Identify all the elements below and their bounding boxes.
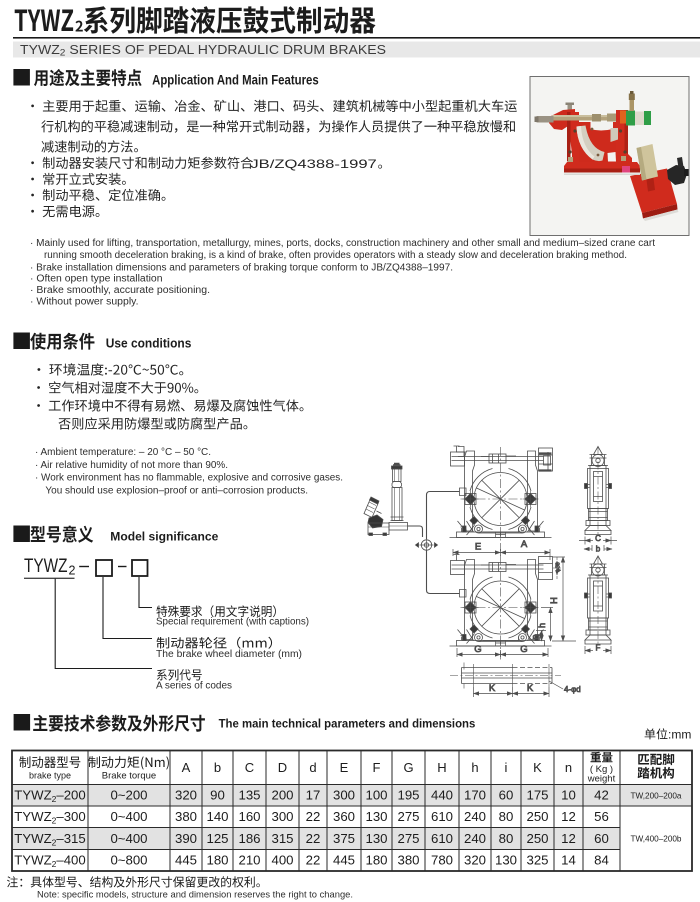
svg-text:195: 195 [397,788,419,803]
svg-text:90: 90 [210,788,225,803]
svg-text:320: 320 [175,788,197,803]
svg-text:· Brake installation dimension: · Brake installation dimensions and para… [30,263,453,274]
svg-text:· Mainly used for lifting, tra: · Mainly used for lifting, transportatio… [30,238,655,249]
svg-text:250: 250 [526,809,548,824]
svg-text:i: i [505,760,508,775]
svg-text:· Without power supply.: · Without power supply. [30,296,139,307]
svg-text:G: G [474,644,481,655]
svg-text:240: 240 [464,809,486,824]
svg-text:Special requirement (with capt: Special requirement (with captions) [156,617,309,628]
svg-text:610: 610 [431,809,453,824]
svg-text:180: 180 [206,853,228,868]
svg-text:610: 610 [431,831,453,846]
svg-text:TYWZ2–300: TYWZ2–300 [14,809,85,826]
svg-text:80: 80 [499,831,514,846]
svg-text:h: h [471,760,478,775]
svg-text:φ30: φ30 [556,562,562,572]
svg-text:TW,400–200b: TW,400–200b [631,835,682,844]
svg-text:Application And Main Features: Application And Main Features [152,72,319,87]
svg-text:C: C [595,534,601,543]
svg-text:130: 130 [365,809,387,824]
svg-text:n: n [530,634,540,639]
svg-text:G: G [403,760,413,775]
svg-text:h: h [537,623,547,628]
svg-text:JB/ZQ4388-1997: JB/ZQ4388-1997 [250,157,376,171]
svg-text:445: 445 [175,853,197,868]
svg-text:F: F [596,644,601,653]
svg-text:315: 315 [271,831,293,846]
svg-text:125: 125 [206,831,228,846]
svg-text:440: 440 [431,788,453,803]
svg-text:H: H [549,597,560,604]
svg-text:170: 170 [464,788,486,803]
svg-text:A series of codes: A series of codes [156,681,232,692]
svg-text:brake type: brake type [29,771,71,781]
svg-text:E: E [340,760,349,775]
svg-text:275: 275 [397,831,419,846]
svg-text:135: 135 [238,788,260,803]
svg-text:56: 56 [594,809,609,824]
svg-text:d: d [309,760,316,775]
svg-text:320: 320 [464,853,486,868]
svg-text:300: 300 [333,788,355,803]
svg-text:380: 380 [175,809,197,824]
svg-text:TYWZ2–400: TYWZ2–400 [14,853,85,870]
svg-text:300: 300 [271,809,293,824]
svg-text:· Brake smoothly, accurate pos: · Brake smoothly, accurate positioning. [30,285,210,296]
svg-text:175: 175 [526,788,548,803]
svg-text:Model significance: Model significance [110,532,218,544]
svg-text:The brake wheel diameter (mm): The brake wheel diameter (mm) [156,649,302,660]
svg-text:375: 375 [333,831,355,846]
svg-text:K: K [489,683,496,694]
svg-text:4-φd: 4-φd [564,685,581,694]
svg-text:186: 186 [238,831,260,846]
svg-text:780: 780 [431,853,453,868]
svg-text:H: H [437,760,446,775]
svg-text:210: 210 [238,853,260,868]
svg-text:22: 22 [306,853,321,868]
svg-text:160: 160 [238,809,260,824]
svg-text:TYWZ2–200: TYWZ2–200 [14,788,85,805]
svg-text:K: K [533,760,542,775]
svg-text:0~400: 0~400 [110,809,147,824]
svg-text:running smooth deceleration br: running smooth deceleration braking, is … [44,250,627,261]
svg-text:TYWZ2 SERIES OF PEDAL HYDRAUL: TYWZ2 SERIES OF PEDAL HYDRAULIC DRUM BRA… [20,42,386,59]
svg-text:TYWZ2–315: TYWZ2–315 [14,831,85,848]
svg-text:K: K [527,683,534,694]
svg-text:22: 22 [306,831,321,846]
svg-text:180: 180 [365,853,387,868]
svg-text:· Ambient temperature: – 20 °C: · Ambient temperature: – 20 °C – 50 °C. [35,447,211,458]
svg-text:140: 140 [206,809,228,824]
svg-text:84: 84 [594,853,609,868]
svg-text:A: A [182,760,191,775]
svg-text:200: 200 [271,788,293,803]
svg-text:100: 100 [365,788,387,803]
svg-text::mm: :mm [668,728,691,742]
svg-text:b: b [596,545,601,554]
svg-text:E: E [475,542,481,553]
svg-text:2: 2 [69,564,76,578]
svg-text:weight: weight [587,774,616,785]
svg-text:The main technical parameters: The main technical parameters and dimens… [219,719,476,731]
svg-text:F: F [373,760,381,775]
svg-text:14: 14 [561,853,576,868]
svg-text:0~400: 0~400 [110,831,147,846]
svg-text:80: 80 [499,809,514,824]
svg-text:400: 400 [271,853,293,868]
svg-text:12: 12 [561,831,576,846]
svg-text:Brake torque: Brake torque [102,771,156,782]
svg-text:390: 390 [175,831,197,846]
svg-text:Note: specific models, struct: Note: specific models, structure and dim… [37,890,353,901]
svg-text:Use conditions: Use conditions [106,336,192,351]
svg-text:22: 22 [306,809,321,824]
svg-text:360: 360 [333,809,355,824]
svg-text:b: b [214,760,221,775]
svg-text:You should use explosion–proof: You should use explosion–proof or anti–c… [45,486,308,497]
svg-text:42: 42 [594,788,609,803]
svg-text:380: 380 [397,853,419,868]
svg-text:C: C [245,760,254,775]
svg-text:D: D [278,760,287,775]
svg-text:G: G [520,644,527,655]
svg-text:12: 12 [561,809,576,824]
svg-text:· Work environment has no flam: · Work environment has no flammable, exp… [35,473,343,484]
svg-text:n: n [565,760,572,775]
svg-text:325: 325 [526,853,548,868]
svg-text:0~200: 0~200 [110,788,147,803]
svg-text:250: 250 [526,831,548,846]
svg-text:· Often open type installation: · Often open type installation [30,274,163,285]
svg-text:130: 130 [495,853,517,868]
svg-text:TYWZ: TYWZ [24,555,68,577]
svg-text:10: 10 [561,788,576,803]
svg-text:60: 60 [499,788,514,803]
svg-text:0~800: 0~800 [110,853,147,868]
svg-text:17: 17 [306,788,321,803]
svg-text:240: 240 [464,831,486,846]
svg-text:130: 130 [365,831,387,846]
svg-text:60: 60 [594,831,609,846]
svg-text:445: 445 [333,853,355,868]
svg-text:A: A [521,539,528,550]
svg-text:275: 275 [397,809,419,824]
svg-text:· Air relative humidity of not: · Air relative humidity of not more than… [35,460,228,471]
svg-text:TW,200–200a: TW,200–200a [631,792,682,801]
